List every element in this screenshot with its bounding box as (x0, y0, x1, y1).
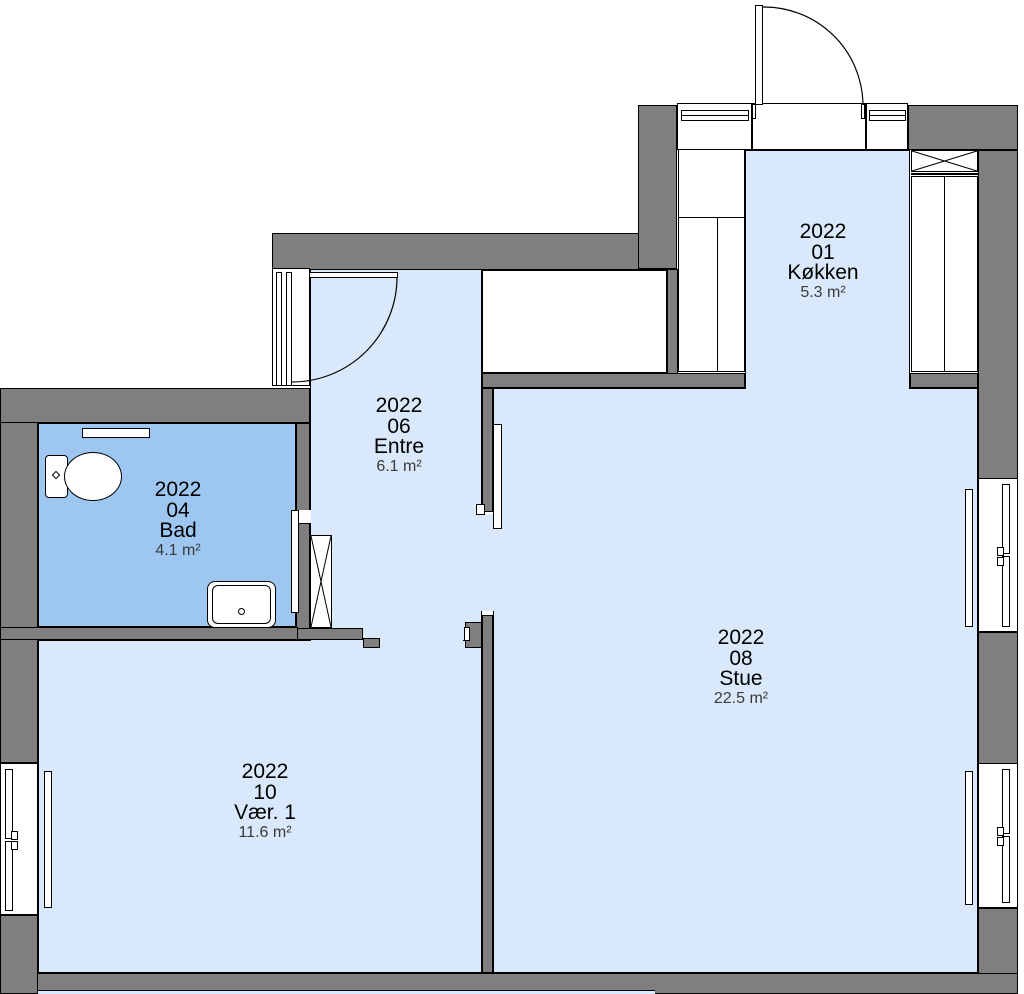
room-code: 2022 (155, 480, 202, 501)
room-number: 04 (155, 501, 202, 522)
wall (0, 627, 298, 640)
window-handle (11, 841, 18, 850)
window-sash (1002, 769, 1010, 834)
counter-divider (717, 217, 718, 372)
room-name: Køkken (787, 263, 858, 284)
entre-door-leaf (309, 272, 398, 278)
toilet-bowl (64, 452, 122, 501)
room-label-entre: 2022 06 Entre 6.1 m² (374, 396, 424, 476)
wall (0, 388, 38, 763)
entry-door-opening (752, 103, 866, 150)
window-glazing-line (682, 115, 748, 116)
room-label-vaer1: 2022 10 Vær. 1 11.6 m² (234, 762, 296, 842)
wall (0, 915, 38, 994)
room-name: Stue (714, 669, 768, 690)
floor-plan: 2022 01 Køkken 5.3 m² 2022 06 Entre 6.1 … (0, 0, 1024, 994)
room-code: 2022 (234, 762, 296, 783)
adjacent-room-sliver (38, 990, 655, 994)
wall (910, 373, 978, 388)
window-sill (44, 771, 52, 908)
window-sash (5, 769, 13, 839)
window-sill (965, 771, 973, 905)
room-label-kokken: 2022 01 Køkken 5.3 m² (787, 222, 858, 302)
door-frame (286, 272, 292, 386)
room-area: 5.3 m² (787, 284, 858, 302)
wall (482, 615, 493, 973)
cabinet-line (911, 173, 978, 175)
window-handle (997, 547, 1004, 556)
room-code: 2022 (787, 222, 858, 243)
room-area: 22.5 m² (714, 690, 768, 708)
wall (638, 105, 677, 269)
counter-divider (678, 217, 745, 218)
cabinet-divider (944, 176, 945, 372)
wall (0, 388, 310, 423)
wall (667, 269, 678, 374)
wall (272, 233, 675, 270)
wall (978, 632, 1018, 765)
entry-door-leaf (755, 5, 763, 105)
sink-basin (212, 585, 271, 624)
window-sash (5, 841, 13, 911)
opening-entre-vaer1 (311, 639, 463, 649)
door-frame (276, 272, 282, 386)
door-latch (476, 504, 485, 515)
room-name: Vær. 1 (234, 803, 296, 824)
room-code: 2022 (374, 396, 424, 417)
window-handle (997, 827, 1004, 836)
kitchen-counter (678, 147, 745, 372)
wall (482, 373, 745, 388)
door-stop (464, 627, 470, 641)
room-area: 4.1 m² (155, 542, 202, 560)
room-label-stue: 2022 08 Stue 22.5 m² (714, 628, 768, 708)
entry-door-swing-arc (763, 7, 863, 103)
wardrobe (482, 270, 667, 373)
ventilation-shaft (310, 535, 332, 628)
window-sash (1002, 836, 1010, 903)
room-label-bad: 2022 04 Bad 4.1 m² (155, 480, 202, 560)
window-sash (1002, 556, 1010, 627)
door-jamb (861, 104, 865, 119)
wall (482, 388, 493, 512)
ventilation-box (911, 150, 978, 172)
room-code: 2022 (714, 628, 768, 649)
wall (978, 150, 1018, 480)
room-area: 11.6 m² (234, 824, 296, 842)
wall (296, 423, 310, 512)
window-handle (997, 837, 1004, 846)
bathroom-shelf (82, 428, 150, 438)
window-sash (1002, 484, 1010, 554)
window-handle (997, 557, 1004, 566)
sink-drain (238, 608, 245, 615)
wall (363, 638, 380, 648)
room-number: 08 (714, 649, 768, 670)
door-jamb (752, 104, 756, 119)
window-sill (965, 489, 973, 627)
room-number: 01 (787, 243, 858, 264)
bad-door-leaf (291, 510, 299, 613)
room-number: 06 (374, 417, 424, 438)
room-name: Bad (155, 521, 202, 542)
doorway-top-white (299, 510, 311, 523)
room-name: Entre (374, 437, 424, 458)
stue-door-leaf (493, 424, 502, 529)
opening-kokken-stue (746, 383, 909, 393)
window-glazing-line (870, 115, 905, 116)
room-number: 10 (234, 783, 296, 804)
wall (296, 628, 363, 640)
window-handle (11, 831, 18, 840)
wall (908, 105, 1018, 150)
room-area: 6.1 m² (374, 458, 424, 476)
